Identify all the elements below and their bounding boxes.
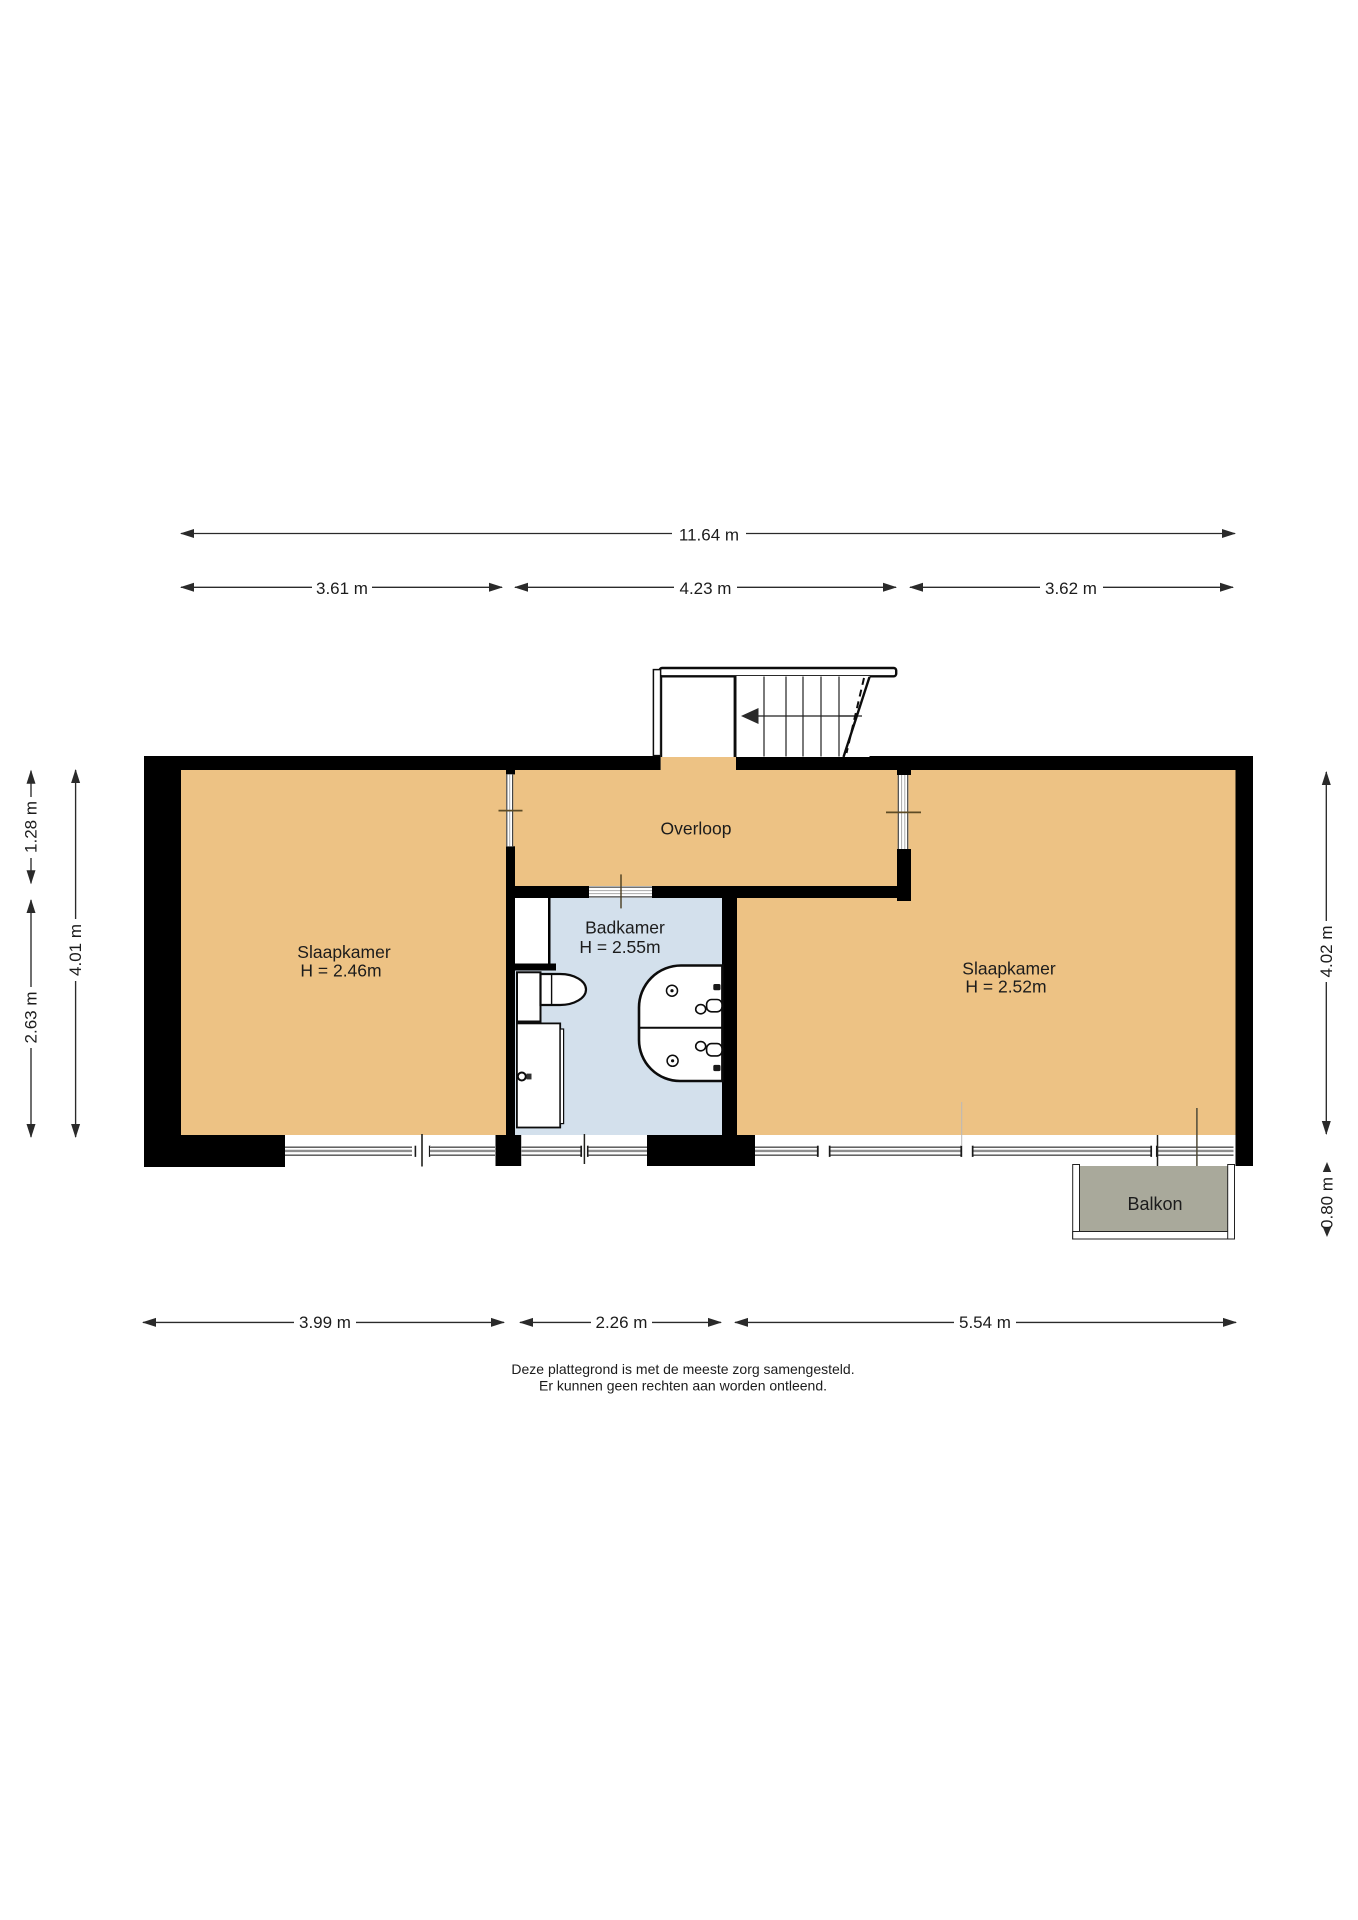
svg-text:2.63 m: 2.63 m [22, 992, 41, 1044]
svg-text:Er kunnen geen rechten aan wor: Er kunnen geen rechten aan worden ontlee… [539, 1378, 827, 1394]
svg-text:11.64 m: 11.64 m [679, 526, 739, 545]
svg-text:Slaapkamer: Slaapkamer [297, 942, 391, 962]
svg-text:1.28 m: 1.28 m [22, 801, 41, 853]
svg-text:Slaapkamer: Slaapkamer [962, 959, 1056, 979]
svg-text:4.01 m: 4.01 m [66, 924, 85, 976]
svg-text:Overloop: Overloop [660, 819, 731, 839]
svg-text:H = 2.46m: H = 2.46m [300, 961, 381, 981]
svg-text:4.02 m: 4.02 m [1317, 926, 1336, 978]
svg-text:0.80 m: 0.80 m [1318, 1177, 1337, 1229]
svg-text:Badkamer: Badkamer [585, 918, 665, 938]
svg-text:3.99 m: 3.99 m [299, 1313, 351, 1332]
svg-text:2.26 m: 2.26 m [596, 1313, 648, 1332]
svg-text:H = 2.52m: H = 2.52m [965, 977, 1046, 997]
svg-text:H = 2.55m: H = 2.55m [579, 937, 660, 957]
svg-text:5.54 m: 5.54 m [959, 1313, 1011, 1332]
svg-text:Deze plattegrond is met de mee: Deze plattegrond is met de meeste zorg s… [511, 1361, 854, 1377]
svg-text:4.23 m: 4.23 m [680, 579, 732, 598]
svg-text:3.62 m: 3.62 m [1045, 579, 1097, 598]
svg-text:3.61 m: 3.61 m [316, 579, 368, 598]
svg-text:Balkon: Balkon [1127, 1194, 1182, 1214]
